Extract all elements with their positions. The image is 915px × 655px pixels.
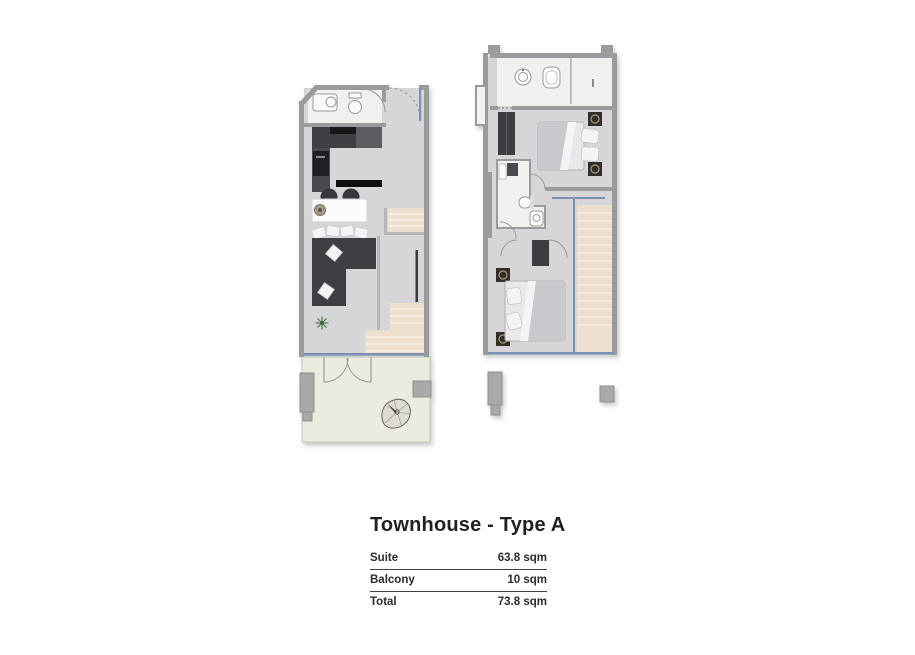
- area-table: Suite 63.8 sqm Balcony 10 sqm Total 73.8…: [370, 548, 547, 613]
- area-row-balcony: Balcony 10 sqm: [370, 570, 547, 592]
- area-label: Balcony: [370, 574, 415, 586]
- area-value: 10 sqm: [507, 574, 547, 586]
- void-window-line: [552, 197, 605, 199]
- upper-floor-plan: [476, 45, 617, 415]
- toilet: [519, 196, 534, 209]
- washer-unit: [507, 163, 518, 176]
- bathroom-sink: [515, 69, 531, 85]
- window-wall: [488, 352, 614, 355]
- page-title: Townhouse - Type A: [370, 514, 565, 537]
- area-label: Total: [370, 596, 397, 608]
- floorplan-sheet: Townhouse - Type A Suite 63.8 sqm Balcon…: [0, 0, 915, 655]
- nightstand: [588, 112, 602, 126]
- nightstand: [588, 162, 602, 176]
- staircase-upper: [573, 199, 612, 352]
- balcony: [300, 357, 431, 442]
- balcony-planter-base: [303, 412, 312, 421]
- bathroom-sink: [530, 211, 543, 226]
- balcony-planter: [300, 373, 314, 412]
- area-value: 73.8 sqm: [498, 596, 547, 608]
- area-value: 63.8 sqm: [498, 552, 547, 564]
- nightstand: [496, 268, 510, 282]
- area-row-suite: Suite 63.8 sqm: [370, 548, 547, 570]
- kitchen-island: [312, 199, 367, 222]
- window-bay: [476, 86, 486, 125]
- toilet: [349, 93, 362, 114]
- plant-icon: [316, 317, 329, 330]
- window-wall: [304, 353, 424, 356]
- column-base: [491, 405, 500, 415]
- balcony-column-base: [413, 381, 431, 397]
- column-base: [600, 386, 614, 402]
- hall-closet: [532, 240, 549, 266]
- bathroom-sink: [313, 94, 337, 111]
- ground-floor-plan: [298, 85, 431, 442]
- toilet: [543, 67, 560, 88]
- kitchen-appliance: [313, 151, 329, 176]
- floorplan-canvas: [0, 0, 915, 500]
- area-label: Suite: [370, 552, 398, 564]
- entry-bathroom: [304, 88, 386, 127]
- column-base: [488, 372, 502, 405]
- area-row-total: Total 73.8 sqm: [370, 592, 547, 613]
- upper-bathroom: [490, 58, 612, 110]
- stair-handrail: [416, 250, 419, 302]
- bed-double: [505, 281, 565, 341]
